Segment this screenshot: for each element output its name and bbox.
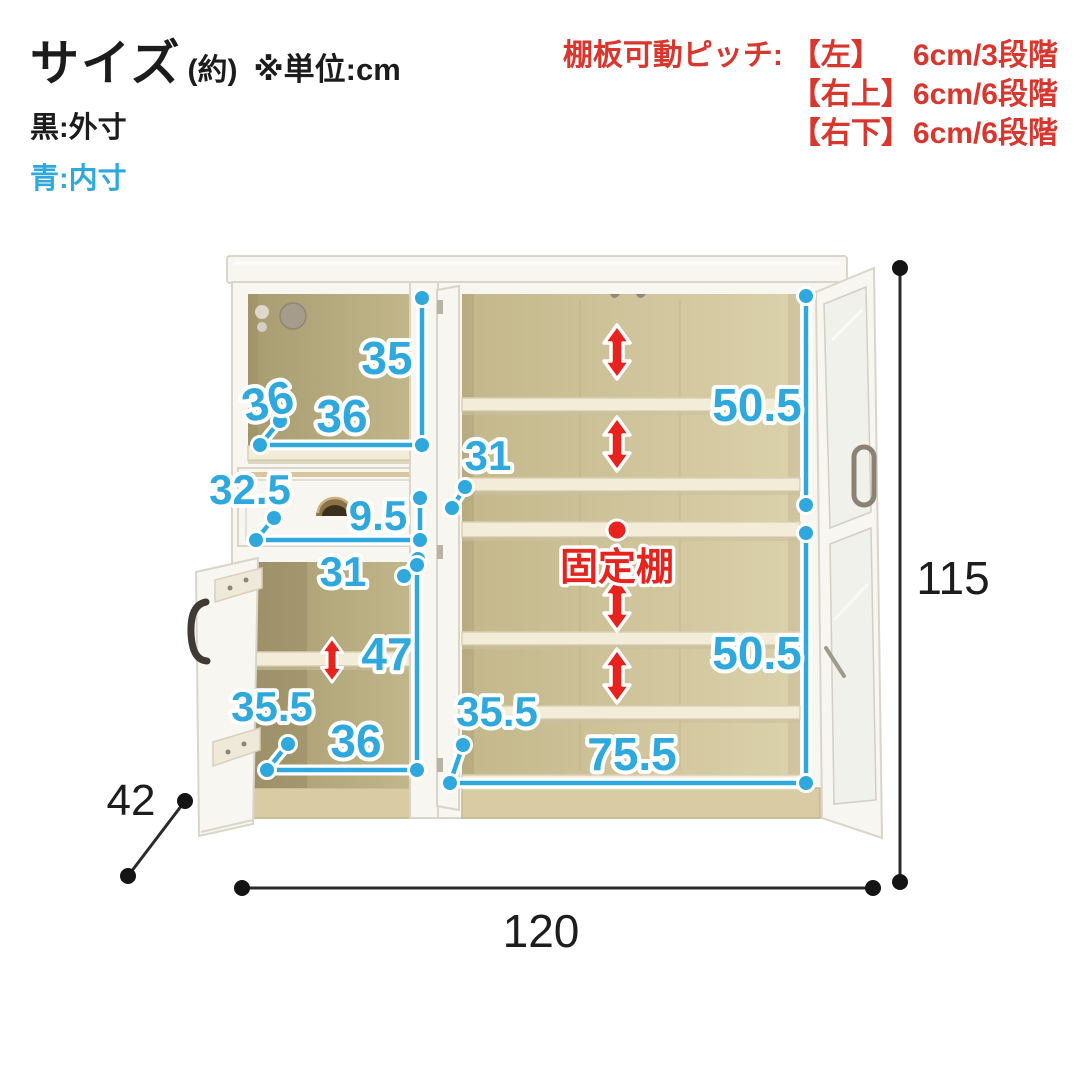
dim-label: 35.5 [231,683,313,730]
right-glass-door [816,268,882,838]
dim-label: 35 [361,332,412,384]
outer-depth-label: 42 [107,776,156,825]
fixed-shelf-dot-icon [607,520,627,540]
dim-label: 35.5 [456,688,538,735]
dim-label: 31 [465,432,512,479]
dim-label: 32.5 [209,466,291,513]
dim-label: 50.5 [712,379,802,431]
dim-label: 50.5 [712,627,802,679]
hinge-fitting-icon [255,305,269,319]
cabinet-top-panel [227,256,847,283]
fixed-shelf-label: 固定棚 [560,547,674,589]
left-base-kickboard [242,788,424,818]
fixed-shelf-board [462,522,800,537]
dim-label: 36 [330,715,381,767]
dim-label: 31 [320,548,367,595]
dim-label: 47 [361,628,412,680]
hinge-icon [437,300,443,314]
right-base-kickboard [462,788,820,818]
hinge-icon [437,545,443,559]
dim-label: 75.5 [587,728,677,780]
outer-height-label: 115 [916,552,989,604]
right-shelf-board [462,478,800,491]
dimension-diagram: 35 36 36 32.5 9.5 31 47 35.5 36 [0,0,1080,1077]
knob-icon [280,303,306,329]
dim-label: 36 [316,390,367,442]
dim-label: 9.5 [349,492,407,539]
outer-width-label: 120 [503,905,580,957]
hinge-icon [437,758,443,772]
